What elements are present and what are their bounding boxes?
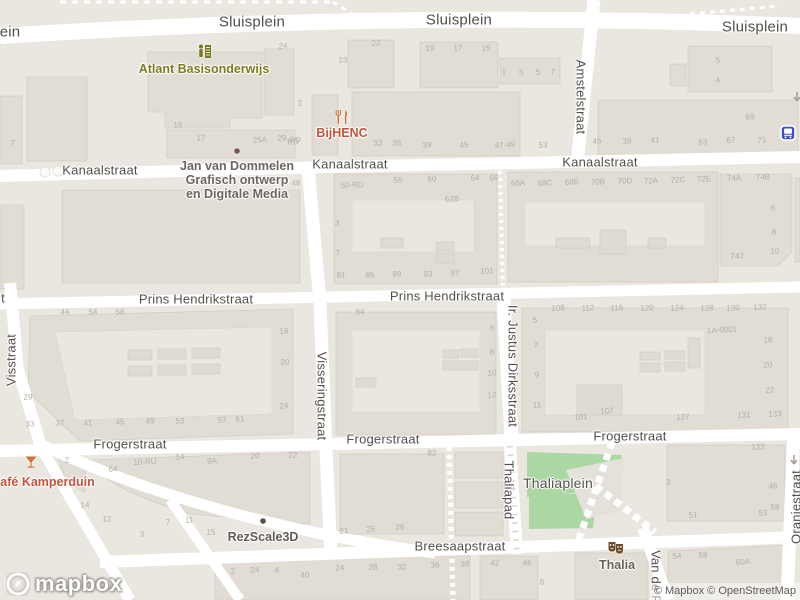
house-number: 42 [490,558,499,567]
street-label-kanaalstraat: Kanaalstraat [62,163,137,178]
house-number: 130 [726,303,740,313]
house-number: 4 [716,75,721,84]
house-number: 53 [758,508,767,517]
house-number: 5 [536,67,541,76]
house-number: 9A [207,456,217,466]
house-number: 4 [275,565,280,574]
house-number: 26 [395,522,404,531]
house-number: 74J [730,251,743,261]
house-number: 14 [175,452,184,461]
house-number: 74B [756,172,771,182]
house-number: 15 [481,43,490,52]
house-number: 40 [300,570,309,579]
house-number: 46 [768,481,777,490]
poi-label-thalia: Thalia [599,558,635,572]
street-label-visseringstraat: Visseringstraat [315,352,330,441]
house-number: 15 [206,527,215,536]
house-number: 60 [427,174,436,183]
house-number: 5 [716,55,721,64]
bus-icon [781,126,796,141]
mapbox-logo[interactable]: mapbox [6,571,122,597]
house-number: 7 [166,517,171,526]
street-label-kanaalstraat: Kanaalstraat [312,157,387,172]
house-number: 20 [280,357,289,366]
house-number: 37 [55,418,64,427]
theater-icon [608,541,625,555]
house-number: 56 [393,175,402,184]
house-number: 107 [600,406,614,416]
house-number: 3 [335,218,340,227]
house-number: 45 [592,136,601,145]
house-number: 24 [279,401,288,410]
house-number: 32 [397,562,406,571]
rez-dot-icon [260,518,267,525]
labels-overlay: SluispleinSluispleinSluispleineinKanaals… [0,0,800,600]
house-number: 120 [640,303,654,313]
house-number: 8 [772,227,777,236]
house-number: 19 [425,43,434,52]
street-label-sluisplein: Sluisplein [722,19,788,36]
house-number: 24 [278,41,287,50]
poi-label-atlant-basisonderwijs: Atlant Basisonderwijs [139,62,270,76]
street-label-t: t [1,291,5,306]
house-number: 45 [459,140,468,149]
house-number: 127 [676,412,690,422]
house-number: 17 [453,43,462,52]
house-number: 68C [537,178,552,188]
street-label-prins-hendrikstraat: Prins Hendrikstraat [139,292,253,307]
house-number: 35 [392,138,401,147]
house-number: 3 [666,477,671,486]
street-label-oranjestraat: Oranjestraat [789,470,800,544]
house-number: 17 [196,133,205,142]
house-number: 18 [763,335,772,344]
house-number: 29 [23,392,32,401]
house-number: 26 [366,524,375,533]
house-number: 14 [80,500,89,509]
poi-label-line: Café Kamperduin [0,475,95,489]
poi-label-line: en Digitale Media [180,187,294,201]
house-number: 12 [102,514,111,523]
house-number: 124 [670,303,684,313]
house-number: 64 [470,173,479,182]
house-number: 28 [368,562,377,571]
house-number: RD [287,137,299,147]
house-number: 128 [700,303,714,313]
house-number: 85 [365,270,374,279]
house-number: 89 [392,269,401,278]
street-label-sluisplein: Sluisplein [219,14,285,31]
house-number: 10 [770,246,779,255]
poi-label-cafe-kamperduin: Café Kamperduin [0,475,95,489]
poi-label-line: Jan van Dommelen [180,159,294,173]
house-number: 63 [698,137,707,146]
house-number: 7 [551,67,556,76]
house-number: 67 [726,135,735,144]
house-number: 39 [422,140,431,149]
house-number: 39 [622,136,631,145]
house-number: 6 [490,323,495,332]
house-number: 50-RD [340,180,364,190]
house-number: 22 [288,450,297,459]
house-number: 57 [217,415,226,424]
poi-label-line: Grafisch ontwerp [180,173,294,187]
street-label-sluisplein: Sluisplein [426,12,492,29]
poi-label-line: Atlant Basisonderwijs [139,62,270,76]
house-number: 25A [253,135,268,145]
house-number: 33 [25,419,34,428]
house-number: 20 [250,451,259,460]
house-number: 8 [540,577,545,586]
house-number: 101 [574,412,588,422]
house-number: 6 [771,203,776,212]
mapbox-logo-word: mapbox [35,571,122,597]
house-number: 3 [519,67,524,76]
house-number: 132 [753,302,767,312]
restaurant-icon [334,109,350,125]
house-number: 16 [279,326,288,335]
house-number: 49 [145,416,154,425]
street-label-kanaalstraat: Kanaalstraat [562,155,637,170]
house-number: 72C [670,175,685,185]
house-number: 64 [108,464,117,473]
house-number: 24 [335,563,344,572]
house-number: 11 [185,515,194,524]
street-label-thaliaplein: Thaliaplein [523,475,593,491]
house-number: 8 [490,347,495,356]
house-number: 51 [688,510,697,519]
house-number: 10-RU [133,457,157,467]
house-number: 66 [489,173,498,182]
house-number: 72A [644,176,659,186]
house-number: 58 [770,502,779,511]
street-label-frogerstraat: Frogerstraat [93,437,166,452]
street-label-ir-justus-dirksstraat: Ir. Justus Dirksstraat [506,305,521,427]
house-number: 41 [650,135,659,144]
house-number: 116 [610,303,623,313]
house-number: 46 [522,558,531,567]
house-number: 84 [355,307,364,316]
house-number: 7 [336,248,341,257]
street-label-frogerstraat: Frogerstraat [346,432,419,447]
house-number: 71 [757,135,766,144]
poi-label-jan-van-dommelen: Jan van DommelenGrafisch ontwerpen Digit… [180,159,294,201]
house-number: 54 [88,307,97,316]
house-number: 47-49 [495,140,516,150]
house-number: 20 [763,360,772,369]
street-label-thaliapad: Thaliapad [502,461,517,520]
house-number: 53 [175,416,184,425]
house-number: 112 [581,303,594,313]
house-number: 81 [336,270,345,279]
house-number: 101 [480,266,494,276]
street-label-frogerstraat: Frogerstraat [593,429,666,444]
house-number: 45 [115,417,124,426]
house-number: 7 [534,340,539,349]
house-number: 21 [339,526,348,535]
house-number: 12 [487,390,496,399]
house-number: 72E [697,174,712,184]
house-number: 22 [765,385,774,394]
house-number: 58 [115,307,124,316]
house-number: 70B [591,177,606,187]
house-number: 44 [60,307,69,316]
house-number: 5 [533,315,538,324]
house-number: 3 [140,529,145,538]
house-number: 2 [231,566,236,575]
house-number: 68E [565,177,580,187]
house-number: 132 [751,442,765,452]
poi-label-line: Thalia [599,558,635,572]
house-number: 97 [450,268,459,277]
attribution[interactable]: © Mapbox © OpenStreetMap [650,583,800,600]
house-number: 22 [371,38,380,47]
house-number: 68A [511,178,526,188]
house-number: 108 [551,303,565,313]
house-number: 2 [298,98,303,107]
house-number: 62B [445,194,460,204]
poi-label-line: BijHENC [316,126,367,140]
house-number: 23 [338,55,347,64]
house-number: 33 [373,138,382,147]
house-number: 131 [737,410,751,420]
street-label-amstelstraat: Amstelstraat [574,60,589,135]
cocktail-icon [24,455,39,470]
house-number: 10 [487,368,496,377]
street-label-ein: ein [0,24,20,41]
house-number: 7 [11,138,16,147]
house-number: 11 [533,400,542,409]
house-number: 60A [736,557,751,567]
street-label-prins-hendrikstraat: Prins Hendrikstraat [390,289,504,304]
house-number: 1A-0001 [707,325,738,336]
house-number: 58 [698,550,707,559]
house-number: 53 [538,140,547,149]
house-number: 36 [430,560,439,569]
street-label-breesaapstraat: Breesaapstraat [415,539,506,554]
map-viewport[interactable]: SluispleinSluispleinSluispleineinKanaals… [0,0,800,600]
house-number: 24 [250,565,259,574]
house-number: 41 [83,418,92,427]
mapbox-logo-icon [6,572,30,596]
house-number: 93 [423,269,432,278]
house-number: 70D [617,176,632,186]
house-number: 1 [502,67,507,76]
house-number: 2 [65,455,70,464]
house-number: 61 [235,414,244,423]
school-icon [196,43,214,61]
house-number: 9 [535,370,540,379]
house-number: 38 [460,559,469,568]
poi-label-rezscale3d: RezScale3D [228,530,299,544]
house-number: 29 [277,133,286,142]
poi-label-line: RezScale3D [228,530,299,544]
house-number: 74A [727,173,742,183]
jvd-dot-icon [234,148,241,155]
house-number: 54 [672,551,681,560]
house-number: 16 [173,120,182,129]
house-number: 82 [427,448,436,457]
house-number: 69 [745,112,754,121]
street-label-visstraat: Visstraat [4,334,19,386]
poi-label-bijhenc: BijHENC [316,126,367,140]
house-number: 133 [768,409,782,419]
